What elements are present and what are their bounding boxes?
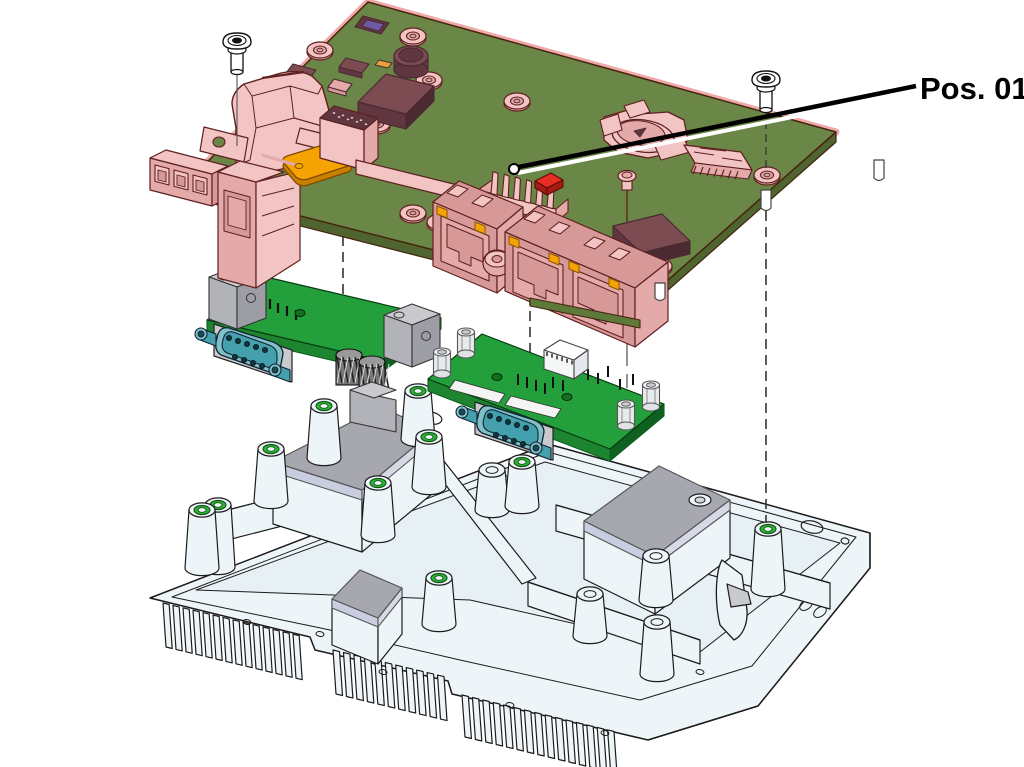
svg-text:Pos. 01: Pos. 01 (920, 71, 1024, 106)
